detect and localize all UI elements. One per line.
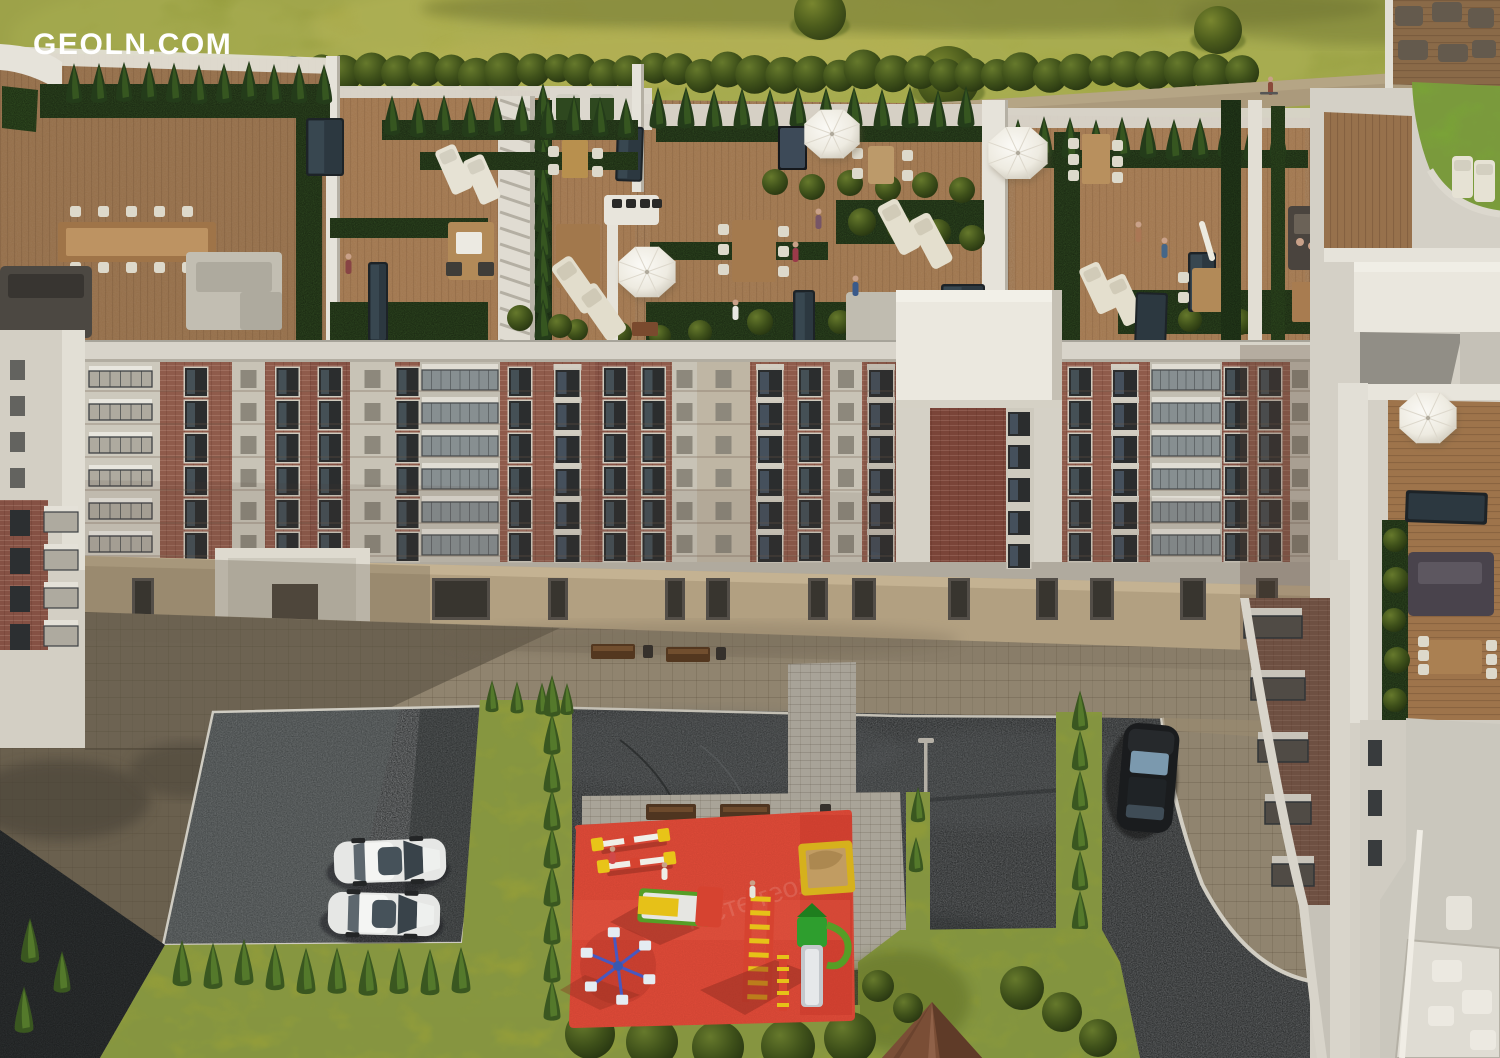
svg-text:GEOLN.COM: GEOLN.COM: [33, 28, 232, 61]
